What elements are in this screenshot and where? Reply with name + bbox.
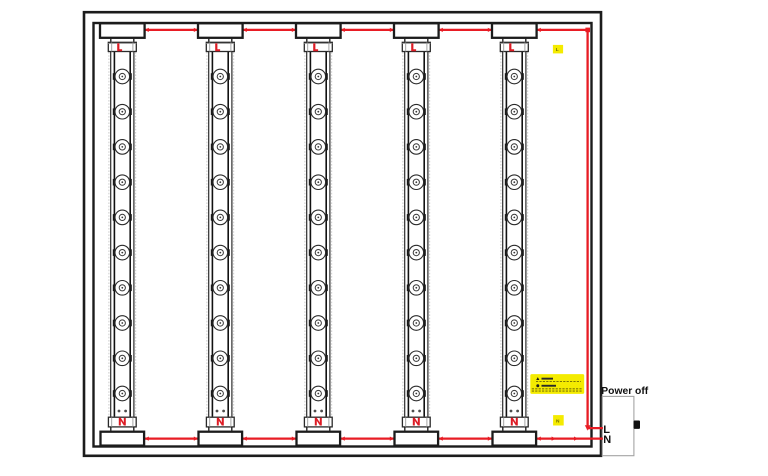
svg-text:L: L — [556, 47, 559, 53]
svg-text:N: N — [556, 419, 560, 425]
svg-text:Power off: Power off — [601, 386, 648, 397]
svg-text:N: N — [603, 434, 611, 446]
